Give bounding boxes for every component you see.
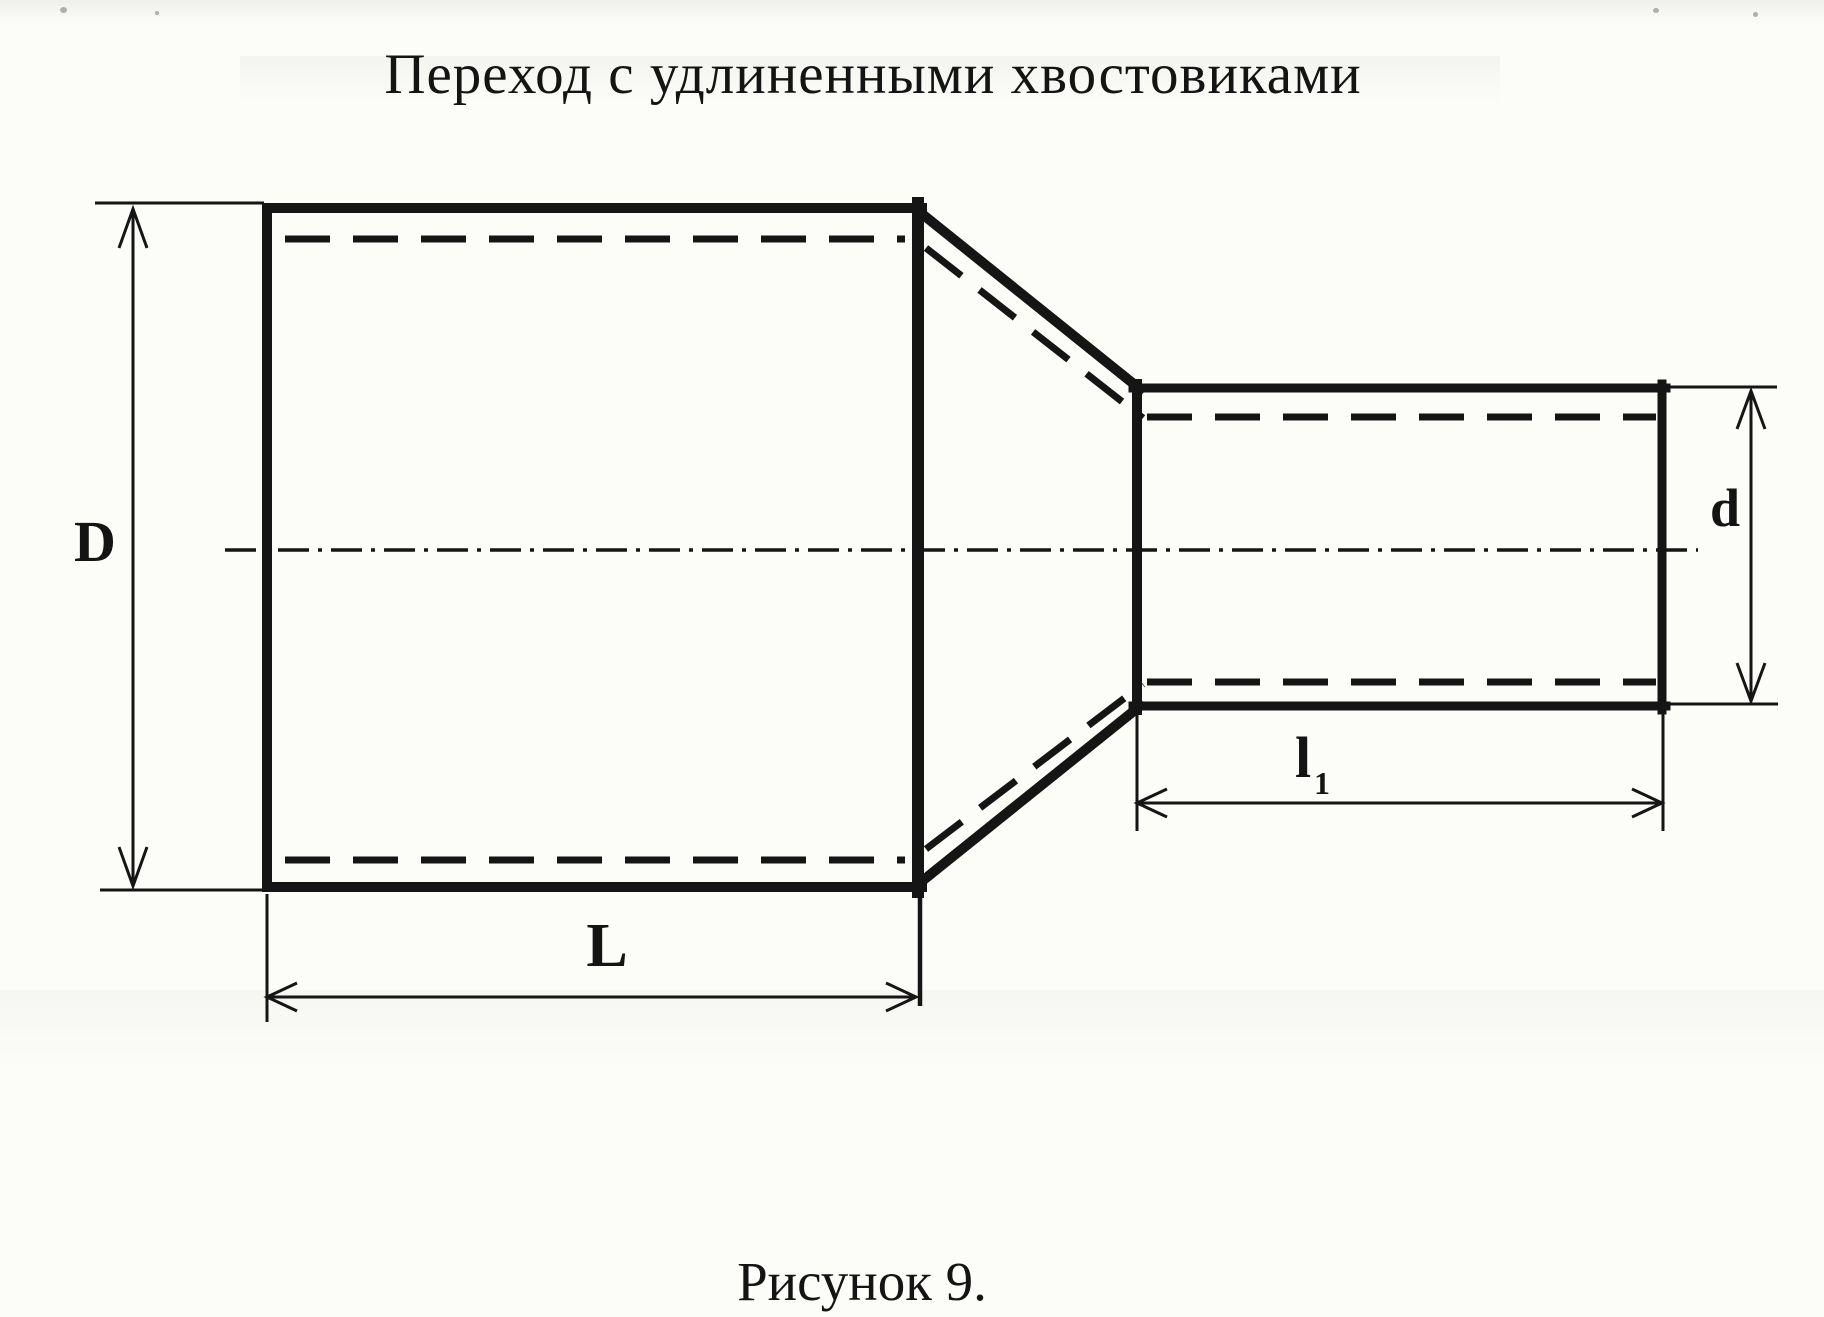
dimension-l1: l 1 xyxy=(1137,711,1663,831)
drawing-title: Переход с удлиненными хвостовиками xyxy=(384,43,1361,106)
cone-inner-wall-bottom xyxy=(926,684,1143,849)
dimension-D: D xyxy=(74,203,264,890)
scanned-drawing-page: Переход с удлиненными хвостовиками Рисун… xyxy=(0,0,1824,1317)
cone-inner-wall-top xyxy=(926,248,1143,418)
dimension-d: d xyxy=(1666,387,1778,704)
dimension-label-l1-subscript: 1 xyxy=(1314,765,1330,801)
part-outline xyxy=(267,203,1666,892)
cone-top-edge xyxy=(916,209,1140,389)
reducer-technical-drawing: Переход с удлиненными хвостовиками Рисун… xyxy=(0,0,1824,1317)
dimension-label-l1-main: l xyxy=(1295,725,1311,790)
dimension-L: L xyxy=(267,892,920,1022)
figure-caption: Рисунок 9. xyxy=(737,1251,987,1312)
large-pipe-outline xyxy=(267,208,922,887)
cone-bottom-edge xyxy=(916,706,1140,886)
dimension-label-L: L xyxy=(586,912,627,980)
dimension-label-D: D xyxy=(74,509,116,574)
dimension-label-d: d xyxy=(1710,478,1740,538)
